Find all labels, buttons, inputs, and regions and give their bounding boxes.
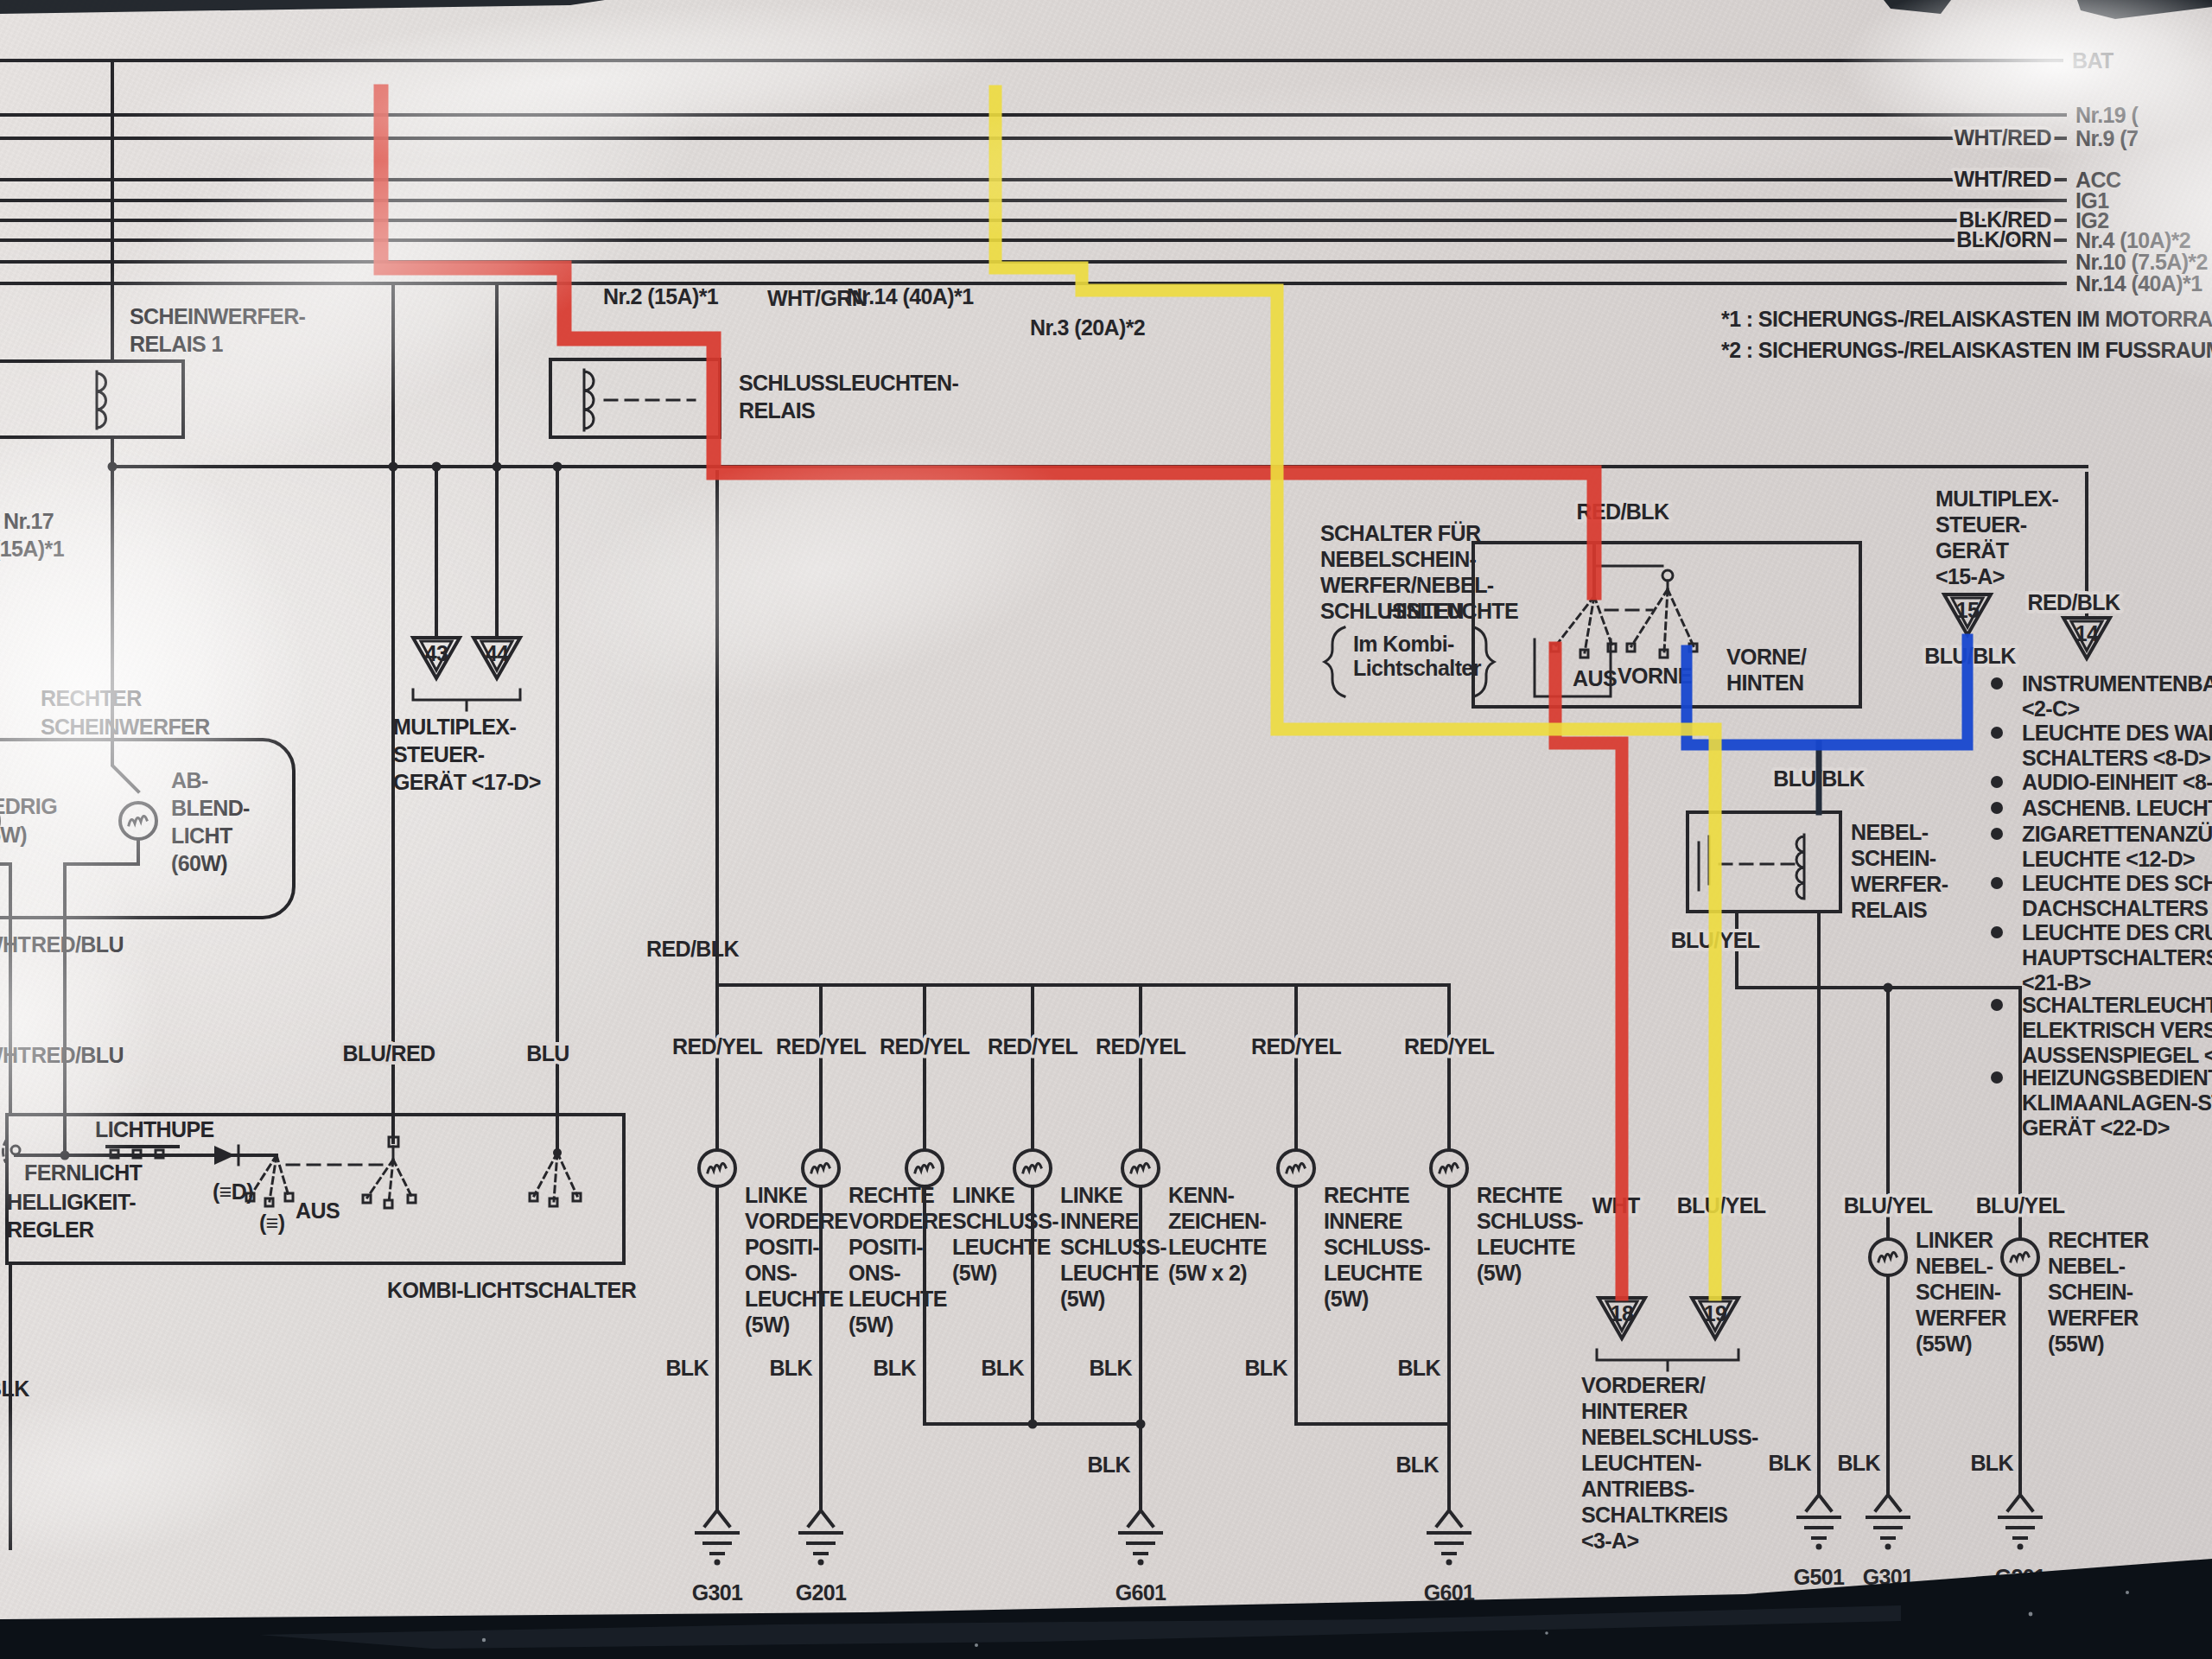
lamp-filament (811, 1163, 829, 1173)
component-list-item: INSTRUMENTENBAUG (2022, 671, 2212, 696)
hinten-label: HINTEN (1387, 599, 1464, 623)
component-list-item: AUDIO-EINHEIT <8-C> (2022, 770, 2212, 794)
lamp-filament (915, 1163, 933, 1173)
switch-pivot-dot (1662, 570, 1673, 581)
lamp-name-label: LEUCHTE (1324, 1261, 1422, 1285)
component-list-item: LEUCHTE <12-D> (2022, 847, 2195, 871)
ground-chevron (1807, 1495, 1831, 1510)
brace-left (1325, 627, 1344, 696)
multiplex-15a-label-1: MULTIPLEX- (1935, 486, 2058, 511)
wire-blk-g501-label: BLK (1768, 1451, 1811, 1475)
wire-blu-red-label: BLU/RED (343, 1041, 435, 1065)
lamp-icon (1278, 1150, 1314, 1186)
wire-blk-kombi-label: BLK (0, 1376, 29, 1401)
lamp-name-label: (5W) (1324, 1287, 1369, 1311)
ground-chevron (705, 1510, 729, 1526)
lamp-icon (906, 1150, 943, 1186)
fog-circuit-label-1: VORDERER/ (1581, 1373, 1706, 1397)
component-list-item: SCHALTERLEUCHTE F (2022, 993, 2212, 1017)
lamp-name-label: (5W) (1060, 1287, 1105, 1311)
lamp-name-label: RECHTE (1477, 1183, 1562, 1207)
connector-number: 44 (486, 641, 509, 665)
ground-label: G501 (1794, 1565, 1845, 1589)
kombi-aus-label: AUS (296, 1198, 340, 1223)
connector-triangle-19: 19 (1692, 1298, 1738, 1338)
lamp-name-label: SCHLUSS- (1477, 1209, 1583, 1233)
contact-terminal (265, 1198, 273, 1206)
fog-lamp-name-label: (55W) (1916, 1332, 1972, 1356)
component-list-item: ZIGARETTENANZÜNDE (2022, 822, 2212, 846)
connector-number: 15 (1956, 598, 1980, 622)
ground-chevron (1437, 1510, 1461, 1526)
photo-of-screen: BATNr.19 (WHT/REDNr.9 (7WHT/REDACCIG1BLK… (0, 0, 2212, 1659)
ground-chevron (809, 1510, 833, 1526)
ground-dot (1885, 1544, 1891, 1550)
wire-red-blk-feed-label: RED/BLK (646, 937, 739, 961)
lamp-name-label: SCHLUSS- (1324, 1235, 1430, 1259)
component-list-item: DACHSCHALTERS <11- (2022, 896, 2212, 920)
im-kombi-label-1: Im Kombi- (1353, 632, 1454, 656)
lamp-name-label: POSITI- (849, 1235, 923, 1259)
multiplex-15a-label-4: <15-A> (1935, 564, 2005, 588)
list-bullet (1991, 1071, 2003, 1084)
ground-symbol: G301 (1863, 1495, 1914, 1589)
lamp-name-label: RECHTE (1324, 1183, 1409, 1207)
contact-terminal (385, 1200, 392, 1208)
light-switch-fan-2 (534, 1153, 577, 1201)
connector-number: 43 (425, 641, 448, 665)
wire-red-yel-label: RED/YEL (1096, 1034, 1185, 1058)
lamp-name-label: (5W) (849, 1313, 893, 1337)
fog-circuit-label-3: NEBELSCHLUSS- (1581, 1425, 1758, 1449)
lamp-name-label: LEUCHTE (849, 1287, 947, 1311)
list-bullet (1991, 999, 2003, 1011)
switch-contact-fans (1555, 589, 1694, 652)
lamp-name-label: LINKE (952, 1183, 1014, 1207)
component-list-item: GERÄT <22-D> (2022, 1116, 2170, 1140)
multiplex-15a-label-3: GERÄT (1935, 538, 2009, 563)
component-list-item: ASCHENB. LEUCHTE <1 (2022, 796, 2212, 820)
nebelscheinwerfer-relais-label-3: WERFER- (1851, 872, 1948, 896)
fog-circuit-label-4: LEUCHTEN- (1581, 1451, 1701, 1475)
wire-blu-label: BLU (526, 1041, 569, 1065)
lamp-name-label: VORDERE (745, 1209, 848, 1233)
wire-red-yel-label: RED/YEL (776, 1034, 866, 1058)
wire-blu-yel-label: BLU/YEL (1844, 1193, 1933, 1217)
top-edge-sliver (0, 0, 605, 14)
lamp-name-label: ZEICHEN- (1168, 1209, 1267, 1233)
fog-lamp-icon (2002, 1239, 2038, 1275)
connector-number: 14 (2075, 621, 2099, 645)
nebelscheinwerfer-relais-label-2: SCHEIN- (1851, 846, 1936, 870)
ground-dot (1446, 1560, 1452, 1566)
switch-top-link (1594, 566, 1668, 589)
connector-triangle-15: 15 (1944, 594, 1991, 635)
fog-lamp-name-label: WERFER (2048, 1306, 2139, 1330)
diode-icon (214, 1146, 235, 1165)
fog-relay-coil (1796, 835, 1804, 899)
component-list-item: SCHALTERS <8-D> (2022, 746, 2210, 770)
list-bullet (1991, 727, 2003, 739)
yellow-wire-path (995, 92, 1715, 1294)
glare-reflections (0, 0, 2212, 1586)
lamp-name-label: SCHLUSS- (952, 1209, 1058, 1233)
lamp-name-label: LEUCHTE (1168, 1235, 1267, 1259)
connector-number: 19 (1704, 1301, 1727, 1325)
lamp-name-label: LINKE (1060, 1183, 1122, 1207)
ground-label: G601 (1116, 1580, 1166, 1605)
connector-bracket-4344 (413, 690, 520, 710)
wire-blk-label: BLK (665, 1356, 709, 1380)
contact-terminal (285, 1193, 293, 1201)
wire-red-yel-label: RED/YEL (1251, 1034, 1341, 1058)
wire-red-blk-right-label: RED/BLK (2028, 590, 2120, 614)
lamp-name-label: KENN- (1168, 1183, 1234, 1207)
lamp-icon (803, 1150, 839, 1186)
lamp-name-label: SCHLUSS- (1060, 1235, 1166, 1259)
connector-triangle-18: 18 (1599, 1298, 1645, 1338)
fuse-nr14-label: Nr.14 (40A)*1 (847, 284, 974, 308)
wire-blk-merge1-label: BLK (1087, 1452, 1130, 1477)
connector-triangle-14: 14 (2063, 618, 2110, 658)
fog-lamp-icon (1870, 1239, 1906, 1275)
multiplex-17d-label-1: MULTIPLEX- (393, 715, 516, 739)
component-list-item: KLIMAANLAGEN-STEU (2022, 1090, 2212, 1115)
ground-dot (1816, 1544, 1822, 1550)
ground-chevron (1128, 1510, 1153, 1526)
list-bullet (1991, 677, 2003, 690)
kombi-lichtschalter-label: KOMBI-LICHTSCHALTER (387, 1278, 637, 1302)
list-bullet (1991, 776, 2003, 788)
ground-symbol: G601 (1424, 1510, 1475, 1605)
list-bullet (1991, 877, 2003, 889)
lamp-icon (1122, 1150, 1159, 1186)
connector-triangle-43: 43 (413, 638, 460, 678)
schlussleuchten-relais-label-2: RELAIS (739, 398, 815, 423)
connector-bracket-1819 (1597, 1350, 1738, 1370)
fog-circuit-label-6: SCHALTKREIS (1581, 1503, 1727, 1527)
fog-circuit-label-5: ANTRIEBS- (1581, 1477, 1694, 1501)
schlussleuchten-relais-box (550, 359, 720, 437)
lamp-name-label: POSITI- (745, 1235, 819, 1259)
ground-chevron (2008, 1495, 2032, 1510)
lamp-filament (1287, 1163, 1305, 1173)
lamp-filament (1131, 1163, 1149, 1173)
contact-terminal (363, 1195, 371, 1203)
lamp-name-label: (5W x 2) (1168, 1261, 1247, 1285)
lamp-filament (1023, 1163, 1041, 1173)
fog-lamp-name-label: WERFER (1916, 1306, 2006, 1330)
lamp-filament (2011, 1252, 2029, 1262)
parklamp-symbol: (≡) (259, 1211, 285, 1235)
multiplex-15a-label-2: STEUER- (1935, 512, 2027, 537)
schlussleuchten-relais-label-1: SCHLUSSLEUCHTEN- (739, 371, 959, 395)
lamp-name-label: (5W) (952, 1261, 997, 1285)
component-list-item: LEUCHTE DES SCHIEB (2022, 871, 2212, 895)
lamp-name-label: LEUCHTE (1060, 1261, 1159, 1285)
wire-blk-label: BLK (769, 1356, 812, 1380)
wire-red-yel-label: RED/YEL (988, 1034, 1077, 1058)
wire-blk-merge2-label: BLK (1395, 1452, 1439, 1477)
vorne-hinten-label-2: HINTEN (1726, 671, 1803, 695)
lamp-icon (1431, 1150, 1467, 1186)
ground-symbol: G501 (1794, 1495, 1845, 1589)
wire-blk-label: BLK (1244, 1356, 1287, 1380)
ground-symbol: G601 (1116, 1510, 1166, 1605)
diode-bar (238, 1146, 276, 1165)
fog-circuit-label-2: HINTERER (1581, 1399, 1688, 1423)
lamp-name-label: INNERE (1060, 1209, 1139, 1233)
nebelscheinwerfer-relais-label-4: RELAIS (1851, 898, 1927, 922)
lamp-name-label: LEUCHTE (745, 1287, 843, 1311)
wire-red-yel-label: RED/YEL (672, 1034, 762, 1058)
lamp-name-label: VORDERE (849, 1209, 951, 1233)
lamp-icon (699, 1150, 735, 1186)
lamp-icon (1014, 1150, 1051, 1186)
list-bullet (1991, 802, 2003, 814)
lamp-name-label: LEUCHTE (1477, 1235, 1575, 1259)
multiplex-17d-label-2: STEUER- (393, 742, 485, 766)
list-bullet (1991, 828, 2003, 840)
component-list-item: HAUPTSCHALTERS (2022, 945, 2212, 969)
contact-terminal (408, 1195, 416, 1203)
wire-blk-label: BLK (981, 1356, 1024, 1380)
contact-terminal (1660, 650, 1668, 658)
im-kombi-label-2: Lichtschalter (1353, 656, 1482, 680)
wire-blk-fog2-label: BLK (1970, 1451, 2013, 1475)
fog-relay-contacts (1699, 836, 1709, 890)
ground-label: G301 (692, 1580, 743, 1605)
wire-blu-yel-label: BLU/YEL (1976, 1193, 2065, 1217)
connector-triangle-44: 44 (474, 638, 520, 678)
fog-lamp-name-label: SCHEIN- (1916, 1280, 2001, 1304)
wiring-svg: BATNr.19 (WHT/REDNr.9 (7WHT/REDACCIG1BLK… (0, 0, 2212, 1659)
vorne-label: VORNE (1618, 664, 1692, 688)
component-list-item: <21-B> (2022, 970, 2091, 995)
contact-terminal (1627, 644, 1635, 652)
fog-lamp-name-label: RECHTER (2048, 1228, 2149, 1252)
list-bullet (1991, 926, 2003, 938)
contact-terminal (550, 1198, 557, 1206)
lamp-name-label: (5W) (1477, 1261, 1522, 1285)
component-list-item: ELEKTRISCH VERST. B (2022, 1018, 2212, 1042)
component-list-item: HEIZUNGSBEDIENTAF (2022, 1065, 2212, 1090)
component-list-item: LEUCHTE DES WARNE (2022, 721, 2212, 745)
fog-lamp-feed-wires (1737, 912, 2020, 1239)
relay2-coil-icon (584, 370, 594, 430)
fog-lamp-name-label: NEBEL- (1916, 1254, 1993, 1278)
ground-symbol: G201 (796, 1510, 847, 1605)
wire-red-yel-label: RED/YEL (1404, 1034, 1494, 1058)
ground-dot (715, 1560, 721, 1566)
lamp-name-label: (5W) (745, 1313, 790, 1337)
ground-chevron (1876, 1495, 1900, 1510)
nebelscheinwerfer-relais-label-1: NEBEL- (1851, 820, 1929, 844)
lamp-filament (1440, 1163, 1458, 1173)
fog-lamp-name-label: SCHEIN- (2048, 1280, 2133, 1304)
schalter-fuer-label-2: NEBELSCHEIN- (1320, 547, 1477, 571)
wire-blk-fog1-label: BLK (1837, 1451, 1880, 1475)
ground-dot (818, 1560, 824, 1566)
fog-circuit-label-7: <3-A> (1581, 1529, 1638, 1553)
contact-terminal (1580, 650, 1588, 658)
schalter-fuer-label-1: SCHALTER FÜR (1320, 521, 1481, 545)
lamp-name-label: ONS- (745, 1261, 797, 1285)
ground-label: G201 (796, 1580, 847, 1605)
lamp-filament (1878, 1252, 1897, 1262)
fog-lamp-name-label: LINKER (1916, 1228, 1993, 1252)
lamp-name-label: LEUCHTE (952, 1235, 1051, 1259)
lamp-ground-merge-wires (925, 1424, 1449, 1510)
fuse-nr2-label: Nr.2 (15A)*1 (603, 284, 719, 308)
wire-blk-label: BLK (1397, 1356, 1440, 1380)
wire-blk-label: BLK (1089, 1356, 1132, 1380)
wire-blk-label: BLK (873, 1356, 916, 1380)
wire-red-yel-label: RED/YEL (880, 1034, 969, 1058)
lamp-name-label: LINKE (745, 1183, 807, 1207)
headlamp-symbol: (≡D) (213, 1179, 253, 1204)
contact-terminal (530, 1193, 537, 1201)
connector-number: 18 (1611, 1301, 1634, 1325)
switch-aus-label: AUS (1573, 666, 1617, 690)
lamp-name-label: INNERE (1324, 1209, 1402, 1233)
component-list-item: <2-C> (2022, 696, 2079, 721)
vorne-hinten-label-1: VORNE/ (1726, 645, 1807, 669)
ground-dot (1138, 1560, 1144, 1566)
lamp-name-label: ONS- (849, 1261, 900, 1285)
component-list-item: LEUCHTE DES CRUISE (2022, 920, 2212, 944)
dimmer-contact-fan (251, 1155, 289, 1201)
multiplex-17d-label-3: GERÄT <17-D> (393, 770, 541, 794)
lamp-filament (708, 1163, 726, 1173)
ground-symbol: G301 (692, 1510, 743, 1605)
fog-lamp-name-label: (55W) (2048, 1332, 2104, 1356)
fog-lamp-name-label: NEBEL- (2048, 1254, 2126, 1278)
ground-dot (2018, 1544, 2024, 1550)
component-list-item: AUSSENSPIEGEL <10-A (2022, 1043, 2212, 1067)
fuse-nr3-label: Nr.3 (20A)*2 (1030, 315, 1145, 340)
schalter-fuer-label-3: WERFER/NEBEL- (1320, 573, 1494, 597)
